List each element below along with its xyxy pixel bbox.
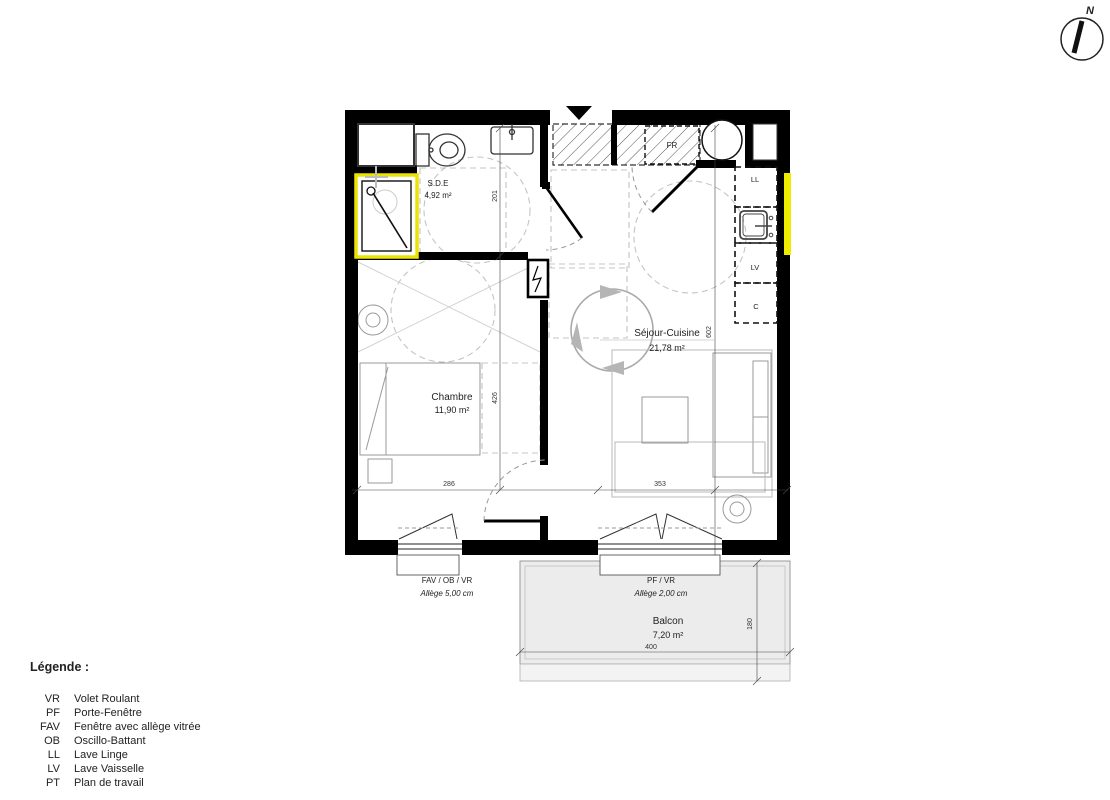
legend-code: FAV bbox=[30, 720, 74, 734]
sde-room-name: S.D.E bbox=[428, 179, 449, 188]
entrance-door bbox=[632, 166, 698, 212]
legend-label: Plan de travail bbox=[74, 776, 201, 790]
legend-code: PF bbox=[30, 706, 74, 720]
sde-door bbox=[542, 182, 582, 250]
chambre-room-area: 11,90 m² bbox=[435, 405, 470, 415]
sejour-window bbox=[598, 514, 722, 575]
legend-code: LL bbox=[30, 748, 74, 762]
legend: Légende : VR Volet Roulant PF Porte-Fenê… bbox=[30, 660, 201, 790]
chambre-window-type: FAV / OB / VR bbox=[422, 576, 473, 585]
dim-balcon-depth: 180 bbox=[747, 618, 754, 630]
utility-box bbox=[753, 124, 777, 160]
stool-icon bbox=[358, 305, 388, 335]
sejour-room-name: Séjour-Cuisine bbox=[634, 328, 700, 339]
window-highlight-right bbox=[784, 173, 791, 255]
north-label: N bbox=[1086, 5, 1095, 17]
electrical-panel-icon bbox=[528, 260, 548, 297]
sejour-room-area: 21,78 m² bbox=[649, 343, 685, 353]
legend-table: VR Volet Roulant PF Porte-Fenêtre FAV Fe… bbox=[30, 692, 201, 790]
dim-sejour-width: 353 bbox=[654, 481, 666, 488]
washbasin-icon bbox=[491, 124, 533, 154]
balcon-room-area: 7,20 m² bbox=[653, 630, 684, 640]
dim-sde-depth: 201 bbox=[492, 190, 499, 202]
kitchen-column bbox=[735, 167, 777, 323]
legend-label: Oscillo-Battant bbox=[74, 734, 201, 748]
chambre-window bbox=[397, 514, 462, 575]
chambre-room-name: Chambre bbox=[431, 392, 473, 403]
duct-shaft bbox=[358, 124, 414, 166]
north-compass-icon: N bbox=[1061, 5, 1103, 60]
legend-label: Lave Vaisselle bbox=[74, 762, 201, 776]
round-table-icon bbox=[723, 495, 751, 523]
chambre-window-allege: Allège 5,00 cm bbox=[420, 589, 474, 598]
chambre-door bbox=[484, 457, 548, 524]
legend-code: LV bbox=[30, 762, 74, 776]
dim-chambre-depth: 426 bbox=[492, 392, 499, 404]
legend-row-fav: FAV Fenêtre avec allège vitrée bbox=[30, 720, 201, 734]
entry-hatch bbox=[553, 124, 700, 165]
toilet-icon bbox=[416, 134, 465, 166]
table-icon bbox=[642, 397, 688, 443]
guide-cross-lines bbox=[358, 262, 540, 352]
legend-row-ll: LL Lave Linge bbox=[30, 748, 201, 762]
washing-machine-box bbox=[735, 167, 777, 207]
washing-machine-label: LL bbox=[751, 175, 759, 184]
living-zone bbox=[612, 350, 772, 497]
legend-code: OB bbox=[30, 734, 74, 748]
sejour-window-type: PF / VR bbox=[647, 576, 675, 585]
nightstand-icon bbox=[368, 459, 392, 483]
shower-icon bbox=[356, 166, 417, 257]
dim-balcon-width: 400 bbox=[645, 644, 657, 651]
cupboard-label: C bbox=[753, 302, 759, 311]
legend-row-lv: LV Lave Vaisselle bbox=[30, 762, 201, 776]
sofa-icon bbox=[615, 353, 771, 492]
legend-code: PT bbox=[30, 776, 74, 790]
legend-title: Légende : bbox=[30, 660, 201, 674]
legend-row-ob: OB Oscillo-Battant bbox=[30, 734, 201, 748]
legend-row-vr: VR Volet Roulant bbox=[30, 692, 201, 706]
entrance-arrow-icon bbox=[566, 106, 592, 120]
dishwasher-label: LV bbox=[751, 263, 760, 272]
fridge-label: FR bbox=[667, 141, 678, 150]
legend-label: Lave Linge bbox=[74, 748, 201, 762]
water-heater-icon bbox=[702, 120, 742, 160]
legend-label: Porte-Fenêtre bbox=[74, 706, 201, 720]
balcon-room-name: Balcon bbox=[653, 616, 684, 627]
kitchen-sink-icon bbox=[740, 211, 773, 239]
legend-code: VR bbox=[30, 692, 74, 706]
legend-label: Fenêtre avec allège vitrée bbox=[74, 720, 201, 734]
dim-sejour-depth: 602 bbox=[706, 326, 713, 338]
sde-room-area: 4,92 m² bbox=[424, 191, 451, 200]
dim-chambre-width: 286 bbox=[443, 481, 455, 488]
legend-label: Volet Roulant bbox=[74, 692, 201, 706]
legend-row-pf: PF Porte-Fenêtre bbox=[30, 706, 201, 720]
sejour-window-allege: Allège 2,00 cm bbox=[634, 589, 688, 598]
legend-row-pt: PT Plan de travail bbox=[30, 776, 201, 790]
